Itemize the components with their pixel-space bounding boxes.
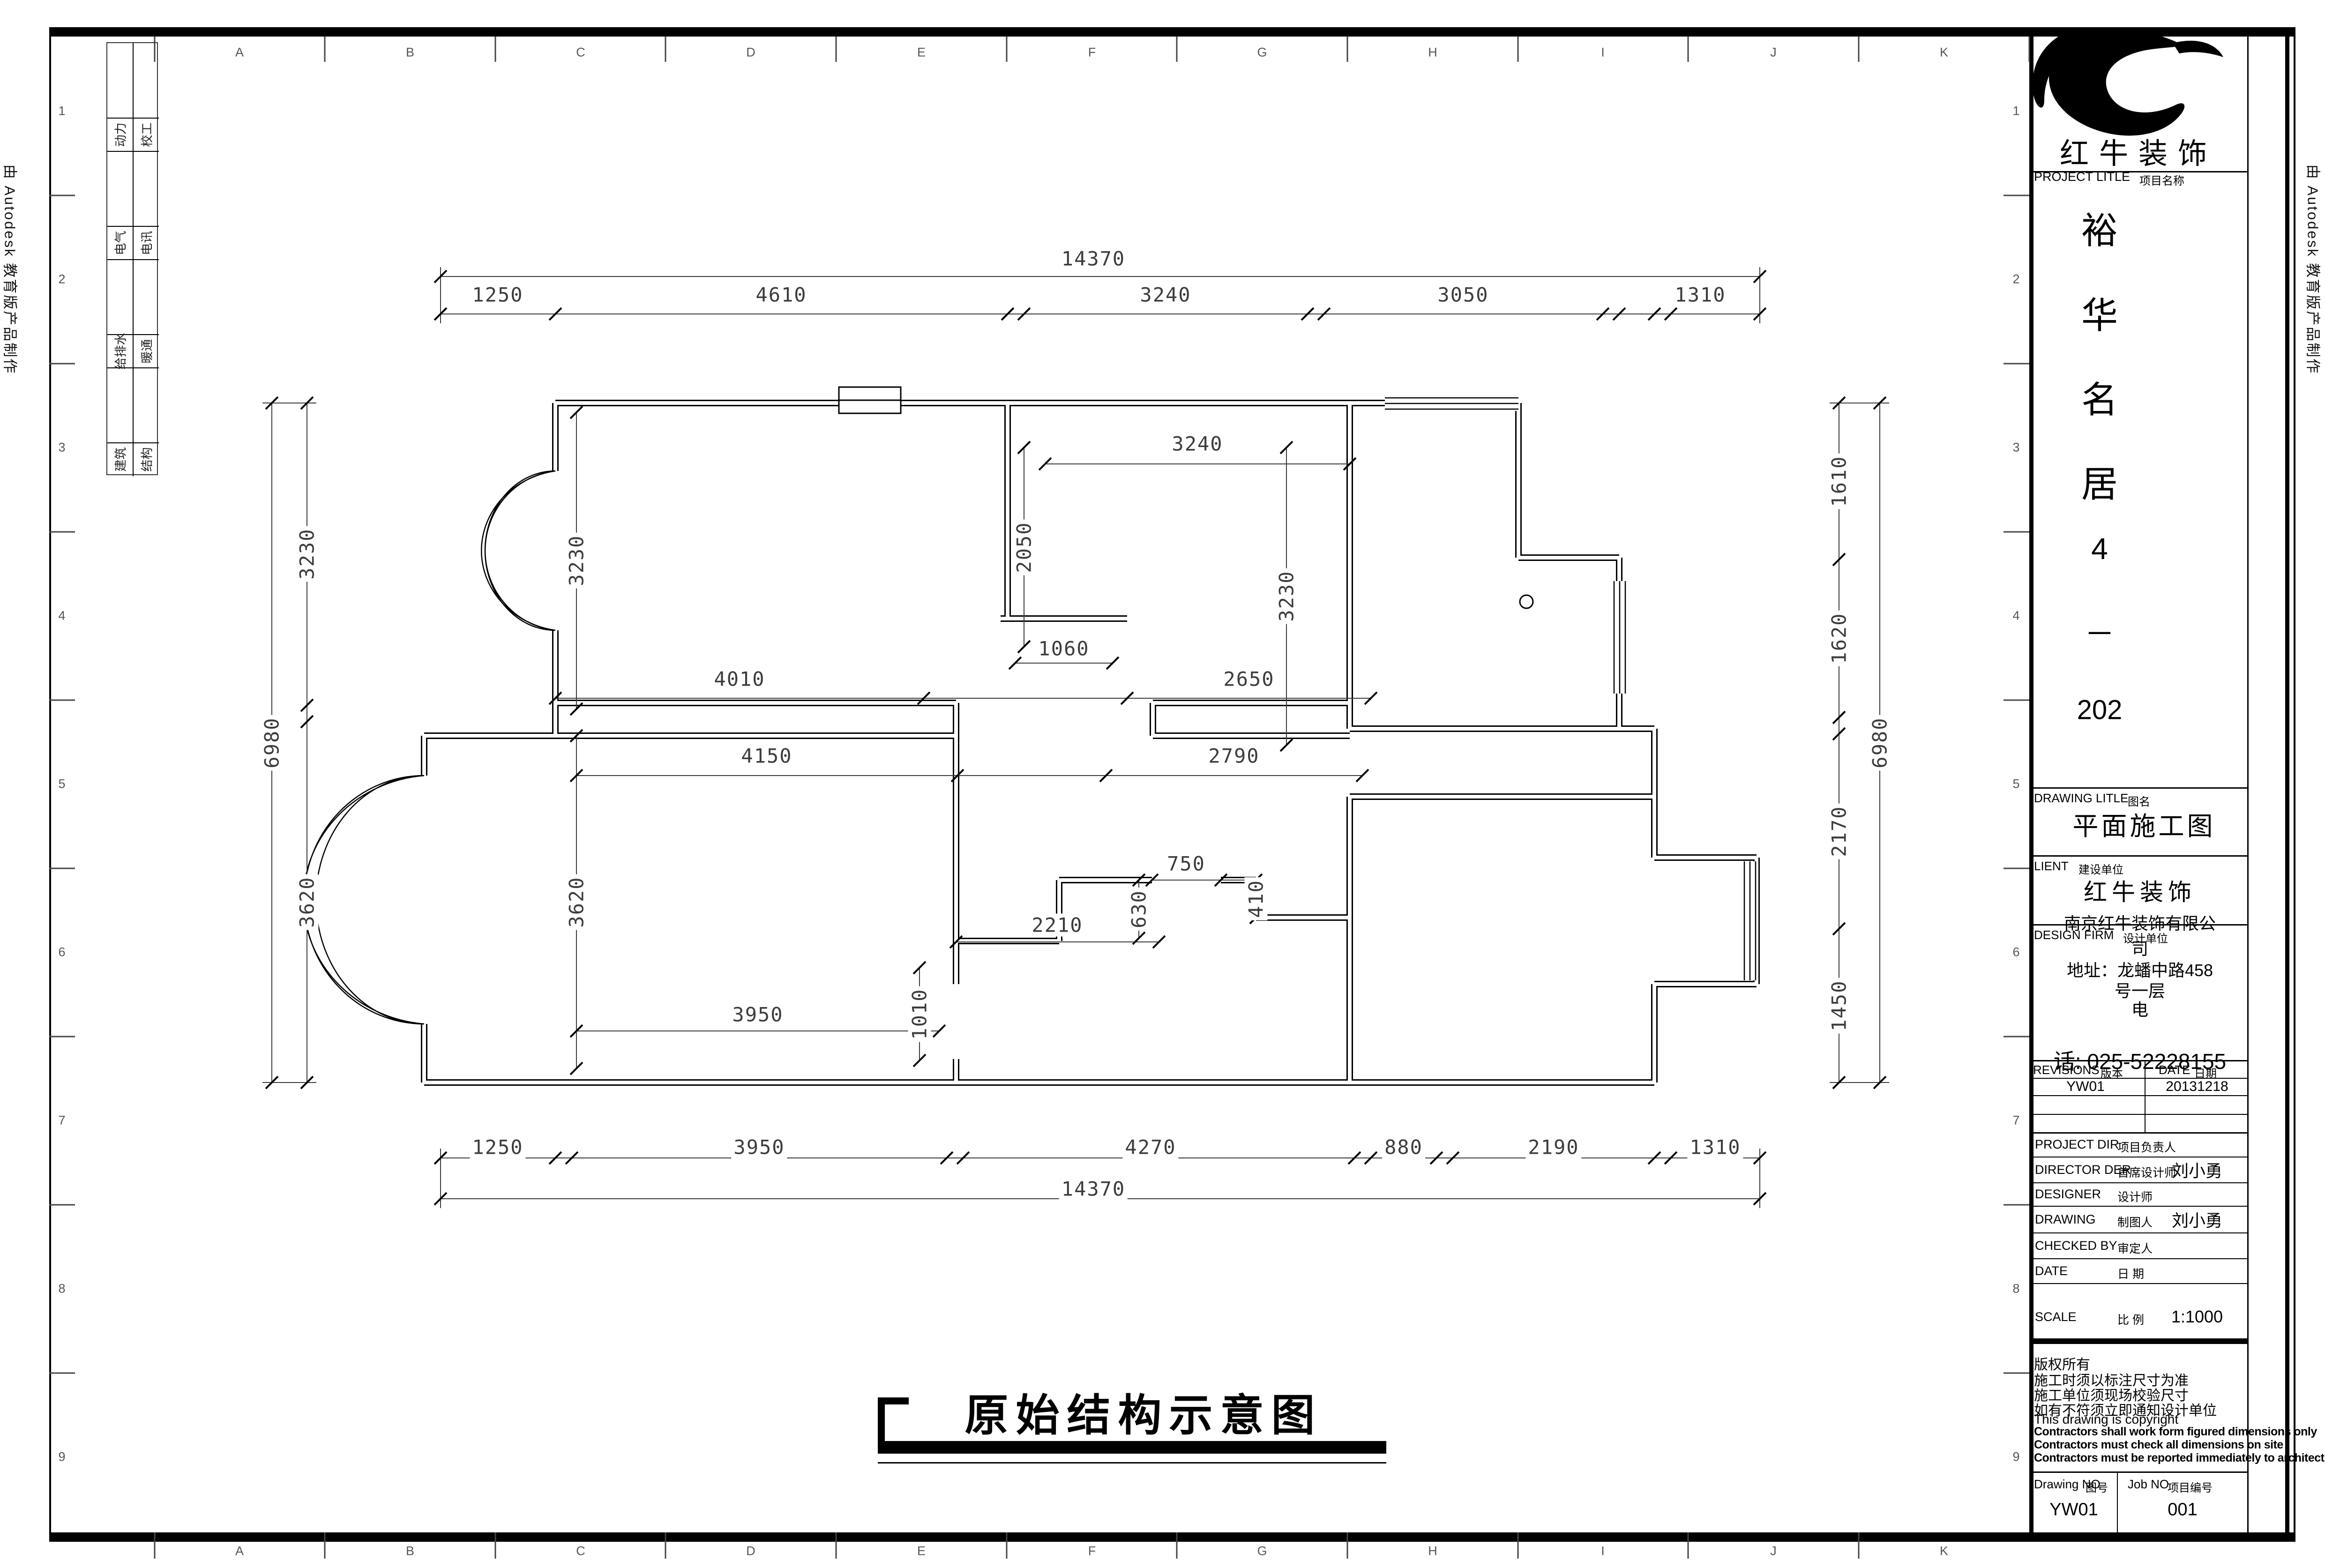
revision-date: 20131218 (2166, 1079, 2228, 1095)
dimension-label: 3050 (1435, 284, 1491, 306)
drawing-sheet: AABBCCDDEEFFGGHHIIJJKK112233445566778899… (0, 0, 2325, 1568)
job-no-label-en: Job NO (2128, 1477, 2169, 1492)
person-value: 刘小勇 (2172, 1207, 2222, 1232)
grid-letter-top: B (406, 45, 414, 60)
job-no-value: 001 (2168, 1500, 2197, 1520)
dimension-label: 3950 (730, 1003, 785, 1026)
project-name-char: 居 (2081, 455, 2118, 508)
grid-number-left: 4 (58, 609, 65, 623)
dimension-label: 4610 (753, 284, 809, 306)
drawing-title-value: 平面施工图 (2072, 805, 2215, 843)
discipline-cell: 电讯 (134, 226, 159, 260)
person-label-zh: 首席设计师 (2117, 1164, 2176, 1180)
dimension-label: 1620 (1828, 610, 1851, 666)
revisions-label-en: REVISIONS (2033, 1063, 2100, 1077)
job-no-label-zh: 项目编号 (2168, 1478, 2213, 1495)
grid-number-left: 5 (58, 777, 65, 791)
table-rule (133, 43, 134, 476)
floor-plan-canvas (0, 0, 2325, 1568)
discipline-cell: 结构 (134, 443, 159, 476)
person-label-en: DRAWING (2035, 1212, 2096, 1227)
person-label-zh: 审定人 (2117, 1239, 2153, 1256)
grid-number-right: 1 (2012, 104, 2019, 119)
grid-letter-bottom: I (1601, 1544, 1605, 1559)
person-label-en: PROJECT DIR (2035, 1137, 2119, 1152)
person-label-en: DIRECTOR DER (2035, 1163, 2131, 1177)
grid-letter-top: G (1257, 45, 1267, 60)
discipline-label: 暖通 (137, 339, 155, 363)
copyright-line: Contractors must be reported immediately… (2034, 1451, 2325, 1465)
dimension-label: 3230 (1275, 568, 1298, 624)
person-label-en: DESIGNER (2035, 1187, 2101, 1202)
grid-number-left: 8 (58, 1282, 65, 1296)
grid-letter-top: C (576, 45, 585, 60)
grid-number-right: 2 (2012, 272, 2019, 287)
dimension-label: 1310 (1672, 284, 1728, 306)
discipline-label: 电气 (111, 231, 128, 255)
dimension-label: 1060 (1036, 637, 1091, 660)
dimension-label: 1010 (908, 986, 931, 1042)
grid-letter-bottom: D (746, 1544, 755, 1559)
discipline-cell: 建筑 (107, 443, 133, 476)
plan-title: 原始结构示意图 (965, 1380, 1323, 1443)
grid-number-right: 5 (2012, 777, 2019, 791)
project-name-char: 202 (2077, 694, 2123, 726)
dimension-label: 14370 (1059, 1178, 1128, 1201)
project-name-char: 华 (2081, 286, 2118, 339)
copyright-line: Contractors shall work form figured dime… (2034, 1425, 2317, 1439)
grid-number-right: 6 (2012, 945, 2019, 960)
dimension-label: 6980 (1869, 715, 1891, 770)
dimension-label: 2790 (1206, 745, 1262, 768)
design-firm-line: 电 (2131, 996, 2148, 1021)
person-value: 刘小勇 (2172, 1157, 2222, 1182)
dimension-label: 2170 (1828, 803, 1851, 859)
dimension-label: 1610 (1828, 453, 1851, 509)
discipline-cell: 给排水 (107, 335, 133, 368)
client-label-en: LIENT (2034, 859, 2069, 874)
grid-number-right: 9 (2012, 1450, 2019, 1464)
discipline-label: 给排水 (112, 333, 129, 369)
dimension-label: 880 (1382, 1136, 1425, 1159)
grid-letter-top: H (1428, 45, 1437, 60)
person-label-en: DATE (2035, 1264, 2068, 1278)
project-name-char: 4 (2091, 531, 2108, 566)
discipline-margin-table: 动力校工电气电讯给排水暖通建筑结构 (106, 42, 158, 475)
dimension-label: 3240 (1137, 284, 1193, 306)
bay-window-upper-left (481, 471, 555, 630)
grid-number-left: 6 (58, 945, 65, 960)
person-value: 1:1000 (2171, 1307, 2223, 1327)
dimension-label: 6980 (261, 715, 284, 770)
grid-letter-bottom: H (1428, 1544, 1437, 1559)
person-label-en: CHECKED BY (2035, 1239, 2117, 1253)
drawing-title-label-en: DRAWING LITLE (2034, 791, 2128, 806)
project-name-char: 裕 (2081, 202, 2118, 254)
person-label-zh: 制图人 (2117, 1213, 2153, 1230)
grid-letter-top: I (1601, 45, 1605, 60)
dimension-label: 3950 (731, 1136, 787, 1159)
grid-number-right: 7 (2012, 1113, 2019, 1128)
brand-name: 红牛装饰 (2060, 130, 2217, 172)
discipline-label: 电讯 (137, 231, 155, 255)
discipline-label: 校工 (137, 122, 155, 147)
revision-id: YW01 (2066, 1079, 2105, 1095)
dimension-label: 3620 (296, 874, 319, 930)
autodesk-watermark-right: 由 Autodesk 教育版产品制作 (2304, 164, 2325, 374)
person-label-zh: 日 期 (2117, 1265, 2144, 1282)
grid-letter-bottom: B (406, 1544, 414, 1559)
dimension-label: 14370 (1059, 247, 1128, 270)
autodesk-watermark-left: 由 Autodesk 教育版产品制作 (1, 164, 22, 374)
dimension-label: 2190 (1525, 1136, 1581, 1159)
grid-letter-bottom: A (235, 1544, 244, 1559)
client-value: 红牛装饰 (2084, 874, 2196, 907)
project-title-label-zh: 项目名称 (2139, 172, 2184, 188)
dimension-label: 2210 (1029, 914, 1085, 937)
project-name-char: 名 (2081, 371, 2118, 423)
discipline-cell: 电气 (107, 226, 133, 260)
plan-walls (424, 387, 1757, 1083)
revisions-date-label-en: DATE (2159, 1063, 2190, 1077)
dimension-label: 3620 (565, 874, 588, 930)
grid-letter-top: F (1088, 45, 1096, 60)
grid-letter-bottom: G (1257, 1544, 1267, 1559)
revisions-date-label-zh: 日期 (2194, 1064, 2217, 1081)
dimension-label: 3230 (565, 532, 588, 588)
discipline-cell: 动力 (107, 118, 133, 151)
brand-logo (2033, 27, 2223, 135)
dimension-label: 410 (1245, 877, 1268, 920)
dimension-label: 3230 (296, 526, 319, 582)
grid-letter-bottom: E (917, 1544, 926, 1559)
person-label-zh: 项目负责人 (2117, 1138, 2176, 1155)
grid-number-left: 1 (58, 104, 65, 119)
discipline-label: 结构 (137, 447, 155, 471)
dimension-label: 1250 (470, 284, 525, 306)
design-firm-line: 司 (2131, 935, 2148, 960)
grid-letter-bottom: K (1940, 1544, 1948, 1559)
grid-number-left: 7 (58, 1113, 65, 1128)
grid-letter-bottom: F (1088, 1544, 1096, 1559)
dimension-label: 1450 (1828, 978, 1851, 1033)
project-name-char: － (2085, 610, 2115, 653)
discipline-label: 建筑 (111, 447, 128, 471)
dimension-label: 1310 (1687, 1136, 1743, 1159)
project-title-label-en: PROJECT LITLE (2034, 170, 2130, 184)
grid-number-left: 3 (58, 441, 65, 455)
bay-window-lower-left (303, 776, 424, 1024)
discipline-label: 动力 (111, 122, 128, 147)
drawing-no-label-zh: 图号 (2086, 1478, 2108, 1495)
person-label-en: SCALE (2035, 1310, 2077, 1324)
dimension-label: 750 (1165, 852, 1208, 875)
dimension-label: 4150 (739, 745, 794, 768)
dimension-label: 2050 (1013, 519, 1036, 575)
grid-number-right: 8 (2012, 1282, 2019, 1296)
grid-number-left: 9 (58, 1450, 65, 1464)
dimension-label: 4270 (1122, 1136, 1178, 1159)
grid-number-right: 3 (2012, 441, 2019, 455)
grid-letter-bottom: C (576, 1544, 585, 1559)
grid-letter-top: K (1940, 45, 1948, 60)
discipline-cell: 校工 (134, 118, 159, 151)
grid-letter-top: J (1770, 45, 1777, 60)
dimension-label: 2650 (1221, 668, 1277, 691)
design-firm-line: 南京红牛装饰有限公 (2064, 910, 2216, 934)
grid-letter-top: D (746, 45, 755, 60)
revisions-label-zh: 版本 (2101, 1064, 2123, 1081)
discipline-cell: 暖通 (134, 335, 159, 368)
frame-grid-ticks (49, 37, 2029, 1559)
grid-number-right: 4 (2012, 609, 2019, 623)
dimension-label: 3240 (1169, 433, 1225, 455)
grid-letter-top: A (235, 45, 244, 60)
dimension-label: 630 (1128, 888, 1151, 931)
grid-number-left: 2 (58, 272, 65, 287)
person-label-zh: 比 例 (2117, 1311, 2144, 1328)
drawing-no-value: YW01 (2049, 1500, 2098, 1520)
person-label-zh: 设计师 (2117, 1188, 2153, 1205)
dimension-label: 1250 (470, 1136, 525, 1159)
dimension-label: 4010 (711, 668, 767, 691)
grid-letter-bottom: J (1770, 1544, 1777, 1559)
grid-letter-top: E (917, 45, 926, 60)
plan-circle-marker (1520, 595, 1533, 608)
copyright-line: Contractors must check all dimensions on… (2034, 1438, 2283, 1452)
